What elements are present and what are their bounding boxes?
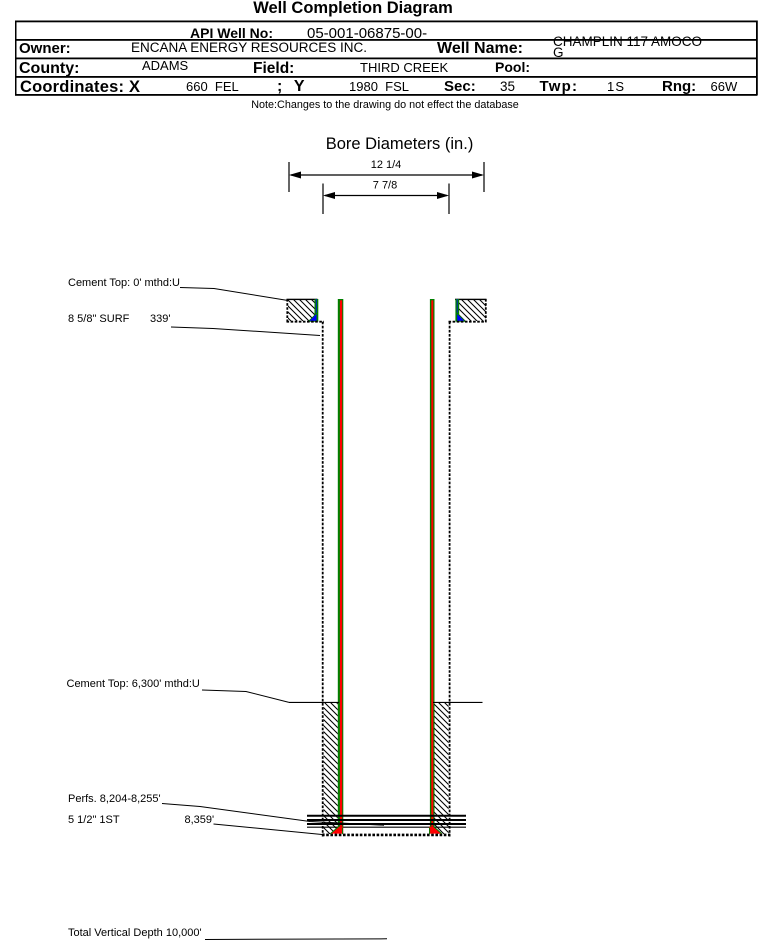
svg-text:7 7/8: 7 7/8 (373, 180, 397, 192)
svg-text:12 1/4: 12 1/4 (371, 159, 402, 171)
